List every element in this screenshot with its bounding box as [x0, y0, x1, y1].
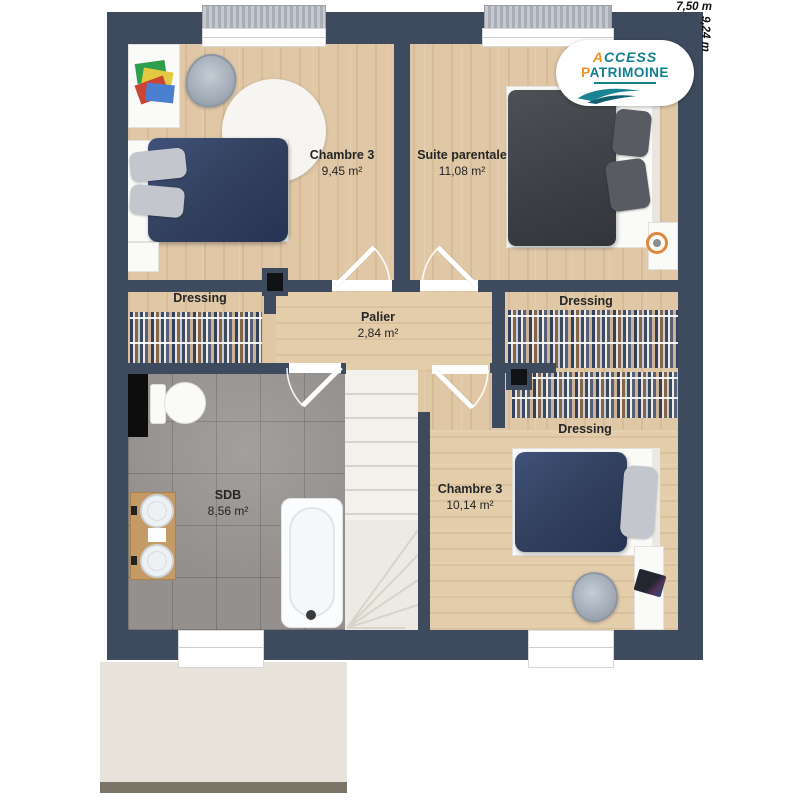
room-label-suite-parentale: Suite parentale 11,08 m² [382, 148, 542, 179]
window-top-left [202, 28, 326, 47]
terrace-edge [100, 782, 347, 793]
pillow-2 [129, 184, 185, 219]
room-label-sdb: SDB 8,56 m² [168, 488, 288, 519]
room-name: Dressing [526, 294, 646, 310]
dimension-height-label: 9,24 m [699, 16, 711, 86]
wall-outer-right [678, 12, 703, 660]
logo-access-patrimoine: ACCESS PATRIMOINE [556, 40, 694, 106]
room-label-chambre3-bottom: Chambre 3 10,14 m² [390, 482, 550, 513]
terrace-roof [100, 662, 347, 782]
floor-plan-canvas: 7,50 m 9,24 m [0, 0, 800, 800]
room-area: 10,14 m² [390, 498, 550, 513]
room-label-dressing-right-bottom: Dressing [525, 422, 645, 438]
structural-post-2 [506, 364, 532, 390]
bathtub-faucet [306, 610, 316, 620]
logo-line1: ACCESS [556, 49, 694, 65]
room-area: 11,08 m² [382, 164, 542, 179]
window-bottom-sdb [178, 630, 264, 668]
bathtub [281, 498, 343, 628]
pillow-bottom [620, 465, 659, 539]
pillow-suite-1 [612, 108, 653, 158]
pillow-1 [129, 147, 188, 183]
dimension-width-label: 7,50 m [600, 1, 712, 13]
room-label-palier: Palier 2,84 m² [308, 310, 448, 341]
structural-post-1 [262, 268, 288, 296]
room-name: Dressing [140, 291, 260, 307]
room-label-dressing-left: Dressing [140, 291, 260, 307]
nightstand-top-left [127, 242, 159, 272]
lamp-ring [646, 232, 668, 254]
faucet-1 [131, 506, 137, 515]
hand-icon [572, 84, 646, 104]
vanity-tray [148, 528, 166, 542]
room-name: SDB [168, 488, 288, 504]
room-name: Palier [308, 310, 448, 326]
wall-sdb-top [128, 363, 289, 374]
magazines-stack [134, 60, 180, 106]
clothes-rack-right-bottom [512, 372, 678, 418]
window-bottom-chambre3 [528, 630, 614, 668]
pillow-suite-2 [605, 157, 652, 212]
room-name: Dressing [525, 422, 645, 438]
wall-h1-mid [392, 280, 420, 292]
room-area: 8,56 m² [168, 504, 288, 519]
clothes-rack-right-top [508, 310, 678, 368]
wall-palier-right [492, 292, 505, 428]
room-label-dressing-right-top: Dressing [526, 294, 646, 310]
room-name: Suite parentale [382, 148, 542, 164]
wall-stairwell-right [418, 412, 430, 630]
clothes-rack-left [130, 312, 262, 366]
wall-h1-right [478, 280, 678, 292]
logo-line2: PATRIMOINE [556, 65, 694, 80]
bathroom-niche [128, 373, 148, 437]
sink-2 [140, 544, 174, 578]
room-name: Chambre 3 [390, 482, 550, 498]
faucet-2 [131, 556, 137, 565]
wall-outer-left [107, 12, 128, 660]
toilet-bowl [164, 382, 206, 424]
room-area: 2,84 m² [308, 326, 448, 341]
